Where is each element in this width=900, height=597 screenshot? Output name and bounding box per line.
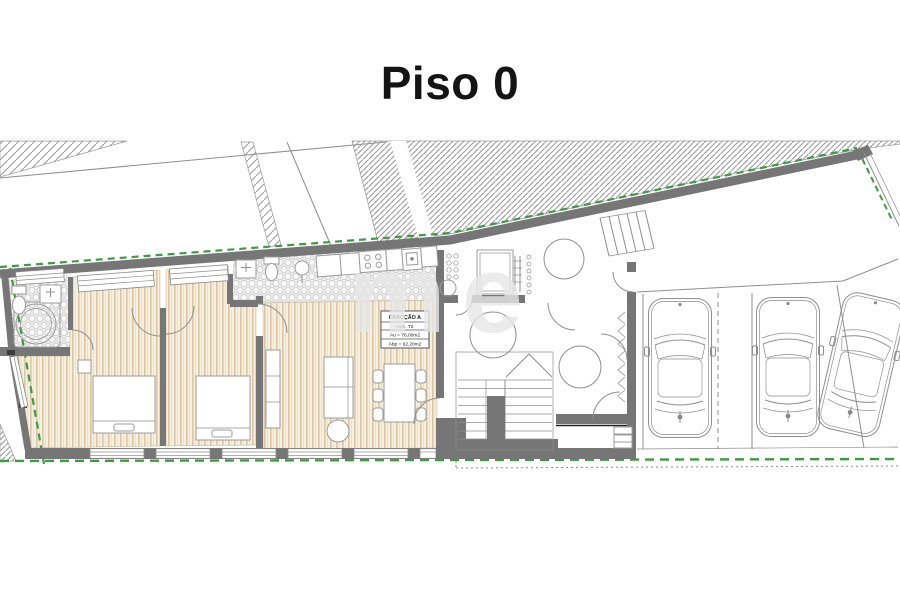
sofa-2 <box>324 357 353 418</box>
wc-toilet <box>264 257 279 281</box>
tree-circle <box>559 346 601 388</box>
floor-plan-drawing: FRACÇÃO A Hab. T2 Au = 76,00m2 Abp = 92,… <box>0 0 900 597</box>
floor-plan-page: Piso 0 <box>0 0 900 597</box>
wc-sink <box>236 260 256 278</box>
bottom-windows <box>90 449 436 459</box>
door-swing <box>548 303 575 330</box>
stair-direction-arrow <box>506 354 552 377</box>
side-table <box>327 420 349 442</box>
stairwell <box>456 352 553 450</box>
tree-circle <box>544 239 584 279</box>
watermark: me <box>348 233 539 356</box>
dining-table <box>373 364 426 422</box>
car-2 <box>753 298 824 437</box>
car-3 <box>811 289 900 440</box>
sofa <box>266 350 280 428</box>
toilet <box>12 286 26 314</box>
entry-steps <box>614 427 632 448</box>
parking-area <box>637 259 900 449</box>
door-swing <box>601 334 627 360</box>
sink <box>40 285 61 303</box>
bed <box>196 376 250 440</box>
exterior-steps <box>600 211 654 257</box>
louver-marks <box>618 312 625 402</box>
car-1 <box>645 299 716 438</box>
nightstand <box>78 360 91 373</box>
bed <box>93 376 155 433</box>
